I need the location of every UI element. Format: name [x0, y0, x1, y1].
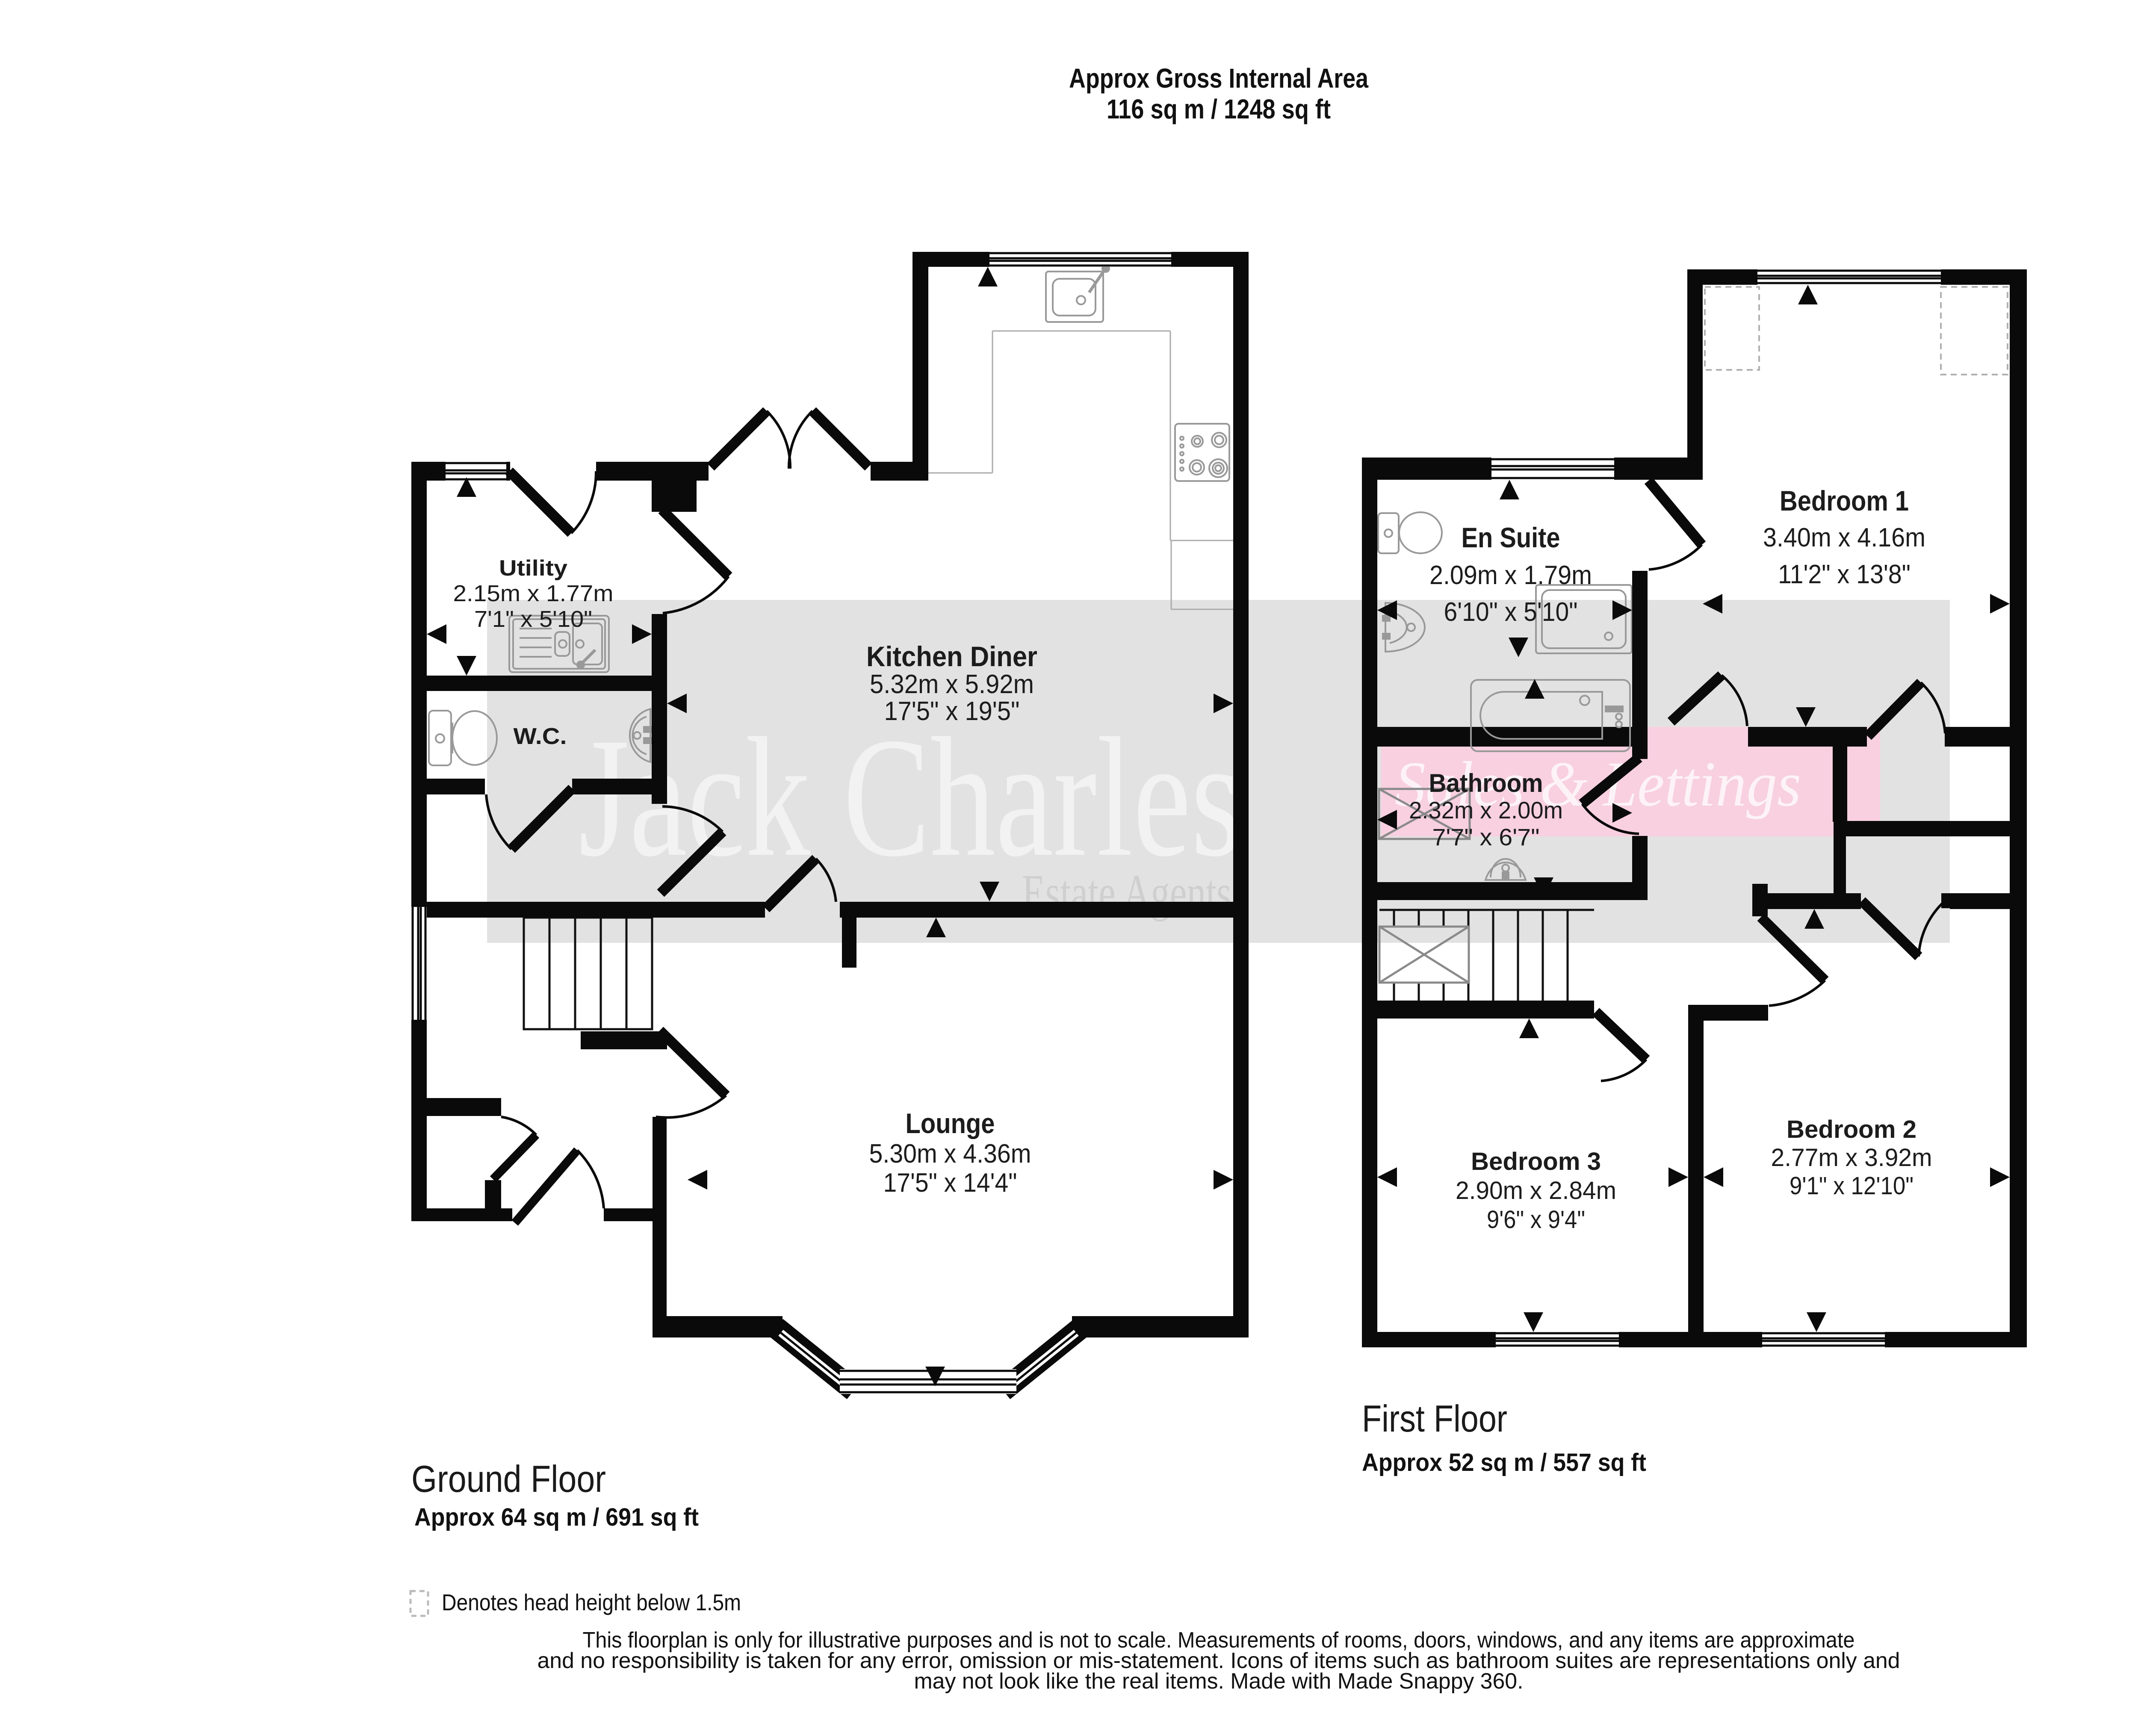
svg-text:2.15m x 1.77m: 2.15m x 1.77m	[453, 581, 614, 606]
svg-text:6'10" x 5'10": 6'10" x 5'10"	[1444, 597, 1578, 627]
svg-text:Approx Gross Internal Area: Approx Gross Internal Area	[1069, 63, 1368, 94]
svg-text:3.40m x 4.16m: 3.40m x 4.16m	[1763, 523, 1925, 552]
svg-text:17'5" x 14'4": 17'5" x 14'4"	[883, 1168, 1017, 1198]
svg-text:2.32m x 2.00m: 2.32m x 2.00m	[1409, 797, 1563, 824]
svg-text:Denotes head height below 1.5m: Denotes head height below 1.5m	[442, 1590, 741, 1615]
svg-text:Kitchen Diner: Kitchen Diner	[866, 641, 1037, 672]
svg-text:En Suite: En Suite	[1462, 522, 1560, 553]
svg-text:11'2" x 13'8": 11'2" x 13'8"	[1778, 560, 1911, 589]
svg-text:Utility: Utility	[499, 556, 567, 581]
svg-text:2.90m x 2.84m: 2.90m x 2.84m	[1456, 1177, 1616, 1205]
svg-text:116 sq m / 1248 sq ft: 116 sq m / 1248 sq ft	[1107, 94, 1331, 124]
svg-text:First Floor: First Floor	[1362, 1397, 1507, 1440]
svg-text:5.30m x 4.36m: 5.30m x 4.36m	[869, 1139, 1031, 1169]
svg-text:Bedroom 2: Bedroom 2	[1787, 1116, 1917, 1143]
svg-text:2.77m x 3.92m: 2.77m x 3.92m	[1771, 1144, 1932, 1172]
svg-text:7'7" x 6'7": 7'7" x 6'7"	[1432, 824, 1540, 850]
svg-text:Approx 52 sq m / 557 sq ft: Approx 52 sq m / 557 sq ft	[1362, 1449, 1646, 1476]
svg-text:5.32m x 5.92m: 5.32m x 5.92m	[870, 670, 1034, 699]
svg-text:2.09m x 1.79m: 2.09m x 1.79m	[1429, 561, 1592, 590]
svg-text:W.C.: W.C.	[514, 723, 567, 749]
svg-text:may not look like the real ite: may not look like the real items. Made w…	[914, 1669, 1524, 1694]
svg-text:Ground Floor: Ground Floor	[411, 1458, 606, 1500]
svg-text:9'6" x 9'4": 9'6" x 9'4"	[1487, 1206, 1585, 1234]
svg-text:Approx 64 sq m / 691 sq ft: Approx 64 sq m / 691 sq ft	[414, 1503, 699, 1531]
svg-text:9'1" x 12'10": 9'1" x 12'10"	[1790, 1172, 1914, 1200]
svg-text:Bedroom 1: Bedroom 1	[1780, 485, 1909, 517]
svg-text:Bathroom: Bathroom	[1429, 769, 1543, 797]
svg-text:7'1" x 5'10": 7'1" x 5'10"	[474, 606, 592, 632]
svg-text:17'5" x 19'5": 17'5" x 19'5"	[884, 697, 1020, 726]
svg-text:Bedroom 3: Bedroom 3	[1471, 1148, 1601, 1175]
svg-text:Lounge: Lounge	[906, 1107, 995, 1139]
svg-text:Jack Charles: Jack Charles	[579, 703, 1242, 892]
